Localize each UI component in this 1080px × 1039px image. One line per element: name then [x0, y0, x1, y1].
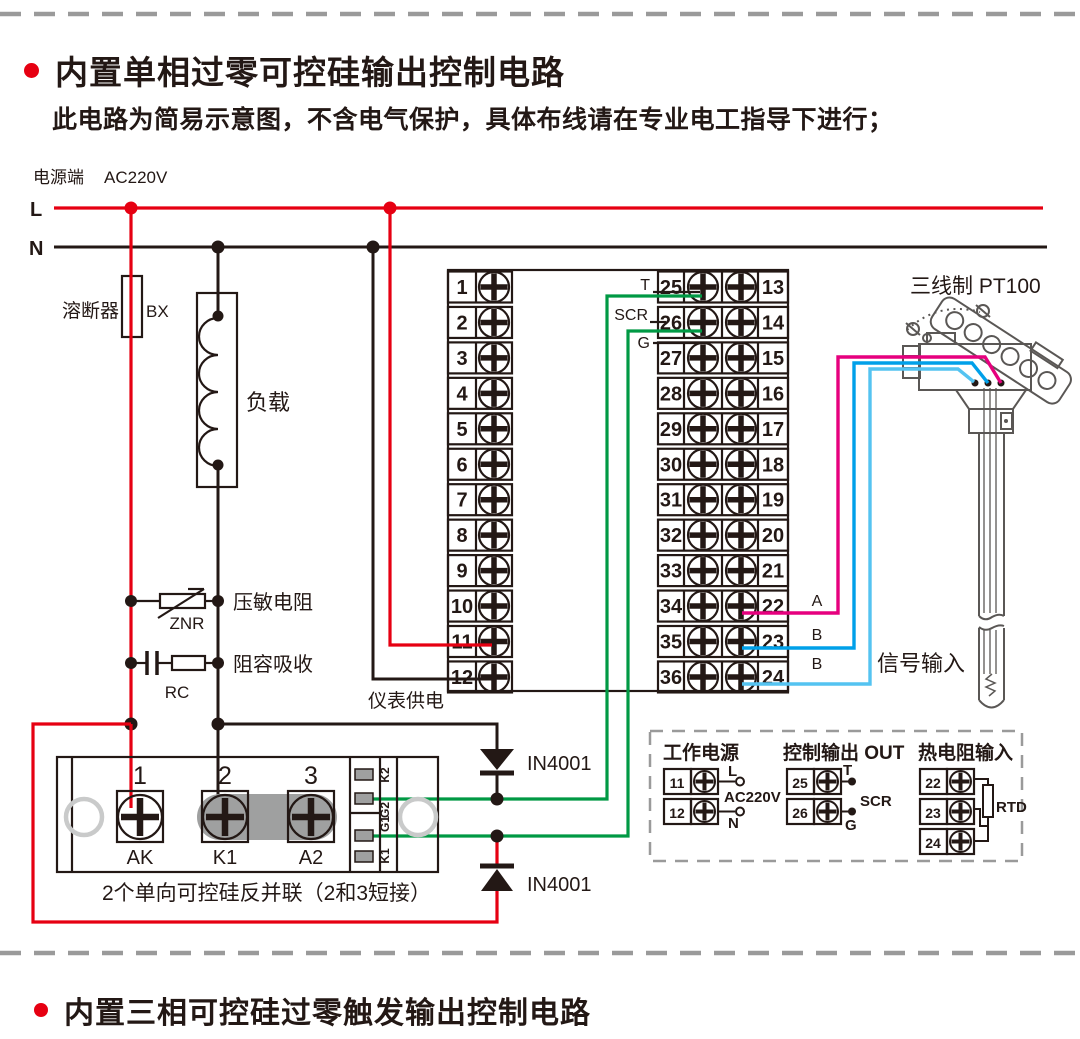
legend-terminal-22: 22	[925, 775, 941, 791]
terminal-number-right: 16	[762, 383, 784, 405]
terminal-number-right: 13	[762, 277, 784, 299]
terminal-number-mid: 32	[660, 525, 682, 547]
legend-rtd-code: RTD	[996, 799, 1027, 816]
label-t: T	[640, 277, 650, 294]
terminal-number-right: 21	[762, 561, 784, 583]
terminal-number-left: 10	[451, 596, 473, 618]
terminal-number-left: 7	[456, 490, 467, 512]
junction-dot	[212, 241, 225, 254]
sensor-title: 三线制 PT100	[910, 275, 1041, 298]
module-name-a2: A2	[299, 847, 323, 869]
terminal-row: 113523	[448, 626, 788, 657]
source-label: 电源端	[33, 168, 84, 187]
diode-top-label: IN4001	[527, 753, 592, 775]
legend-output-title: 控制输出 OUT	[783, 741, 905, 764]
legend-scr: SCR	[860, 793, 892, 810]
meter-supply-label: 仪表供电	[368, 690, 444, 712]
signal-input-label: 信号输入	[877, 651, 965, 676]
module-name-ak: AK	[127, 847, 154, 869]
pin-g1: G1	[378, 816, 392, 832]
terminal-number-right: 20	[762, 525, 784, 547]
terminal-number-mid: 30	[660, 454, 682, 476]
probe-tip	[979, 700, 1004, 708]
junction-dot	[125, 202, 138, 215]
legend-control-output: 控制输出 OUT 25 T 26 SCR G	[783, 741, 905, 834]
label-g: G	[638, 335, 650, 352]
terminal-number-right: 14	[762, 312, 785, 334]
pin-k2: K2	[378, 767, 392, 783]
legend-rtd-input: 热电阻输入 22 23 24 RTD	[918, 741, 1027, 854]
pin-k1: K1	[378, 848, 392, 864]
wire-label-a: A	[812, 593, 823, 610]
live-label: L	[30, 199, 42, 221]
diode-top: IN4001	[480, 749, 592, 799]
module-terminal-3: 3	[304, 762, 318, 790]
wire-label-b1: B	[812, 627, 823, 644]
rtd-element-icon	[986, 674, 995, 696]
terminal-row: 42816	[448, 378, 788, 409]
junction-dot	[491, 830, 504, 843]
source-voltage: AC220V	[104, 168, 168, 187]
legend-terminal-11: 11	[670, 775, 685, 791]
terminal-row: 103422	[448, 591, 788, 622]
legend-inset: 工作电源 11 L AC220V 12 N 控制输出 OUT 25	[650, 731, 1027, 861]
terminal-number-right: 22	[762, 596, 784, 618]
terminal-number-mid: 29	[660, 419, 682, 441]
terminal-number-left: 2	[456, 312, 467, 334]
legend-rtd-title: 热电阻输入	[918, 741, 1013, 764]
mounting-hole	[400, 799, 436, 835]
legend-power-title: 工作电源	[663, 741, 739, 764]
terminal-number-mid: 36	[660, 667, 682, 689]
module-terminal-2: 2	[218, 762, 232, 790]
fuse-code: BX	[146, 302, 169, 321]
terminal-row: 73119	[448, 484, 788, 515]
terminal-number-mid: 34	[660, 596, 683, 618]
terminal-number-mid: 28	[660, 383, 682, 405]
legend-working-power: 工作电源 11 L AC220V 12 N	[663, 741, 781, 832]
legend-g: G	[845, 817, 857, 834]
terminal-number-left: 9	[456, 561, 467, 583]
sensor-neck	[956, 390, 1026, 409]
terminal-number-mid: 33	[660, 561, 682, 583]
terminal-number-right: 15	[762, 348, 784, 370]
fuse: 溶断器 BX	[62, 208, 169, 724]
legend-terminal-12: 12	[669, 805, 685, 821]
neutral-rail: N	[29, 238, 1047, 260]
terminal-row: 93321	[448, 555, 788, 586]
legend-l: L	[728, 763, 737, 780]
wire-label-b2: B	[812, 656, 823, 673]
neutral-label: N	[29, 238, 43, 260]
scr-caption: 2个单向可控硅反并联（2和3短接）	[102, 882, 431, 905]
terminal-block-rows: 1251322614327154281652917630187311983220…	[448, 272, 788, 693]
module-name-k1: K1	[213, 847, 237, 869]
terminal-row: 63018	[448, 449, 788, 480]
legend-terminal-25: 25	[792, 775, 808, 791]
wiring-diagram: 电源端 AC220V L N 溶断器 BX 负载	[0, 0, 1080, 1039]
junction-dot	[491, 793, 504, 806]
terminal-row: 32715	[448, 342, 788, 373]
terminal-number-right: 18	[762, 454, 784, 476]
load: 负载	[197, 247, 290, 724]
legend-t: T	[843, 762, 852, 779]
power-source-label: 电源端 AC220V	[33, 168, 168, 187]
live-rail: L	[30, 199, 1043, 221]
terminal-number-mid: 31	[660, 490, 682, 512]
terminal-row: 12513	[448, 272, 788, 303]
terminal-number-mid: 27	[660, 348, 682, 370]
legend-ac220v: AC220V	[724, 789, 781, 806]
terminal-number-left: 8	[456, 525, 467, 547]
terminal-number-left: 6	[456, 454, 467, 476]
terminal-number-right: 19	[762, 490, 784, 512]
terminal-number-right: 23	[762, 632, 784, 654]
legend-terminal-26: 26	[792, 805, 808, 821]
pin-g2: G2	[378, 802, 392, 818]
diode-feed-wire	[218, 724, 497, 749]
legend-terminal-24: 24	[925, 835, 941, 851]
terminal-number-left: 4	[456, 383, 468, 405]
terminal-row: 123624	[448, 661, 788, 692]
terminal-number-left: 1	[456, 277, 467, 299]
terminal-number-left: 3	[456, 348, 467, 370]
snubber-code: RC	[165, 683, 190, 702]
legend-n: N	[728, 815, 739, 832]
terminal-number-right: 17	[762, 419, 784, 441]
legend-terminal-23: 23	[925, 805, 941, 821]
scr-module: 1 2 3 AK K1 A2 K2 G2 G1 K1 2个单向可控硅反并联（2和…	[57, 757, 438, 905]
load-label: 负载	[246, 390, 290, 415]
diode-bottom: IN4001	[480, 836, 592, 896]
terminal-number-left: 11	[451, 632, 472, 654]
varistor-label: 压敏电阻	[233, 591, 313, 614]
snubber-label: 阻容吸收	[233, 653, 313, 676]
terminal-number-left: 5	[456, 419, 467, 441]
rtd-resistor-icon	[983, 785, 993, 817]
diode-bottom-label: IN4001	[527, 874, 592, 896]
terminal-row: 52917	[448, 413, 788, 444]
terminal-row: 83220	[448, 520, 788, 551]
terminal-number-mid: 35	[660, 632, 682, 654]
fuse-label: 溶断器	[62, 300, 119, 322]
pt100-sensor: 三线制 PT100	[903, 275, 1079, 708]
module-terminal-1: 1	[133, 762, 147, 790]
label-scr: SCR	[614, 307, 648, 324]
varistor-code: ZNR	[170, 614, 205, 633]
